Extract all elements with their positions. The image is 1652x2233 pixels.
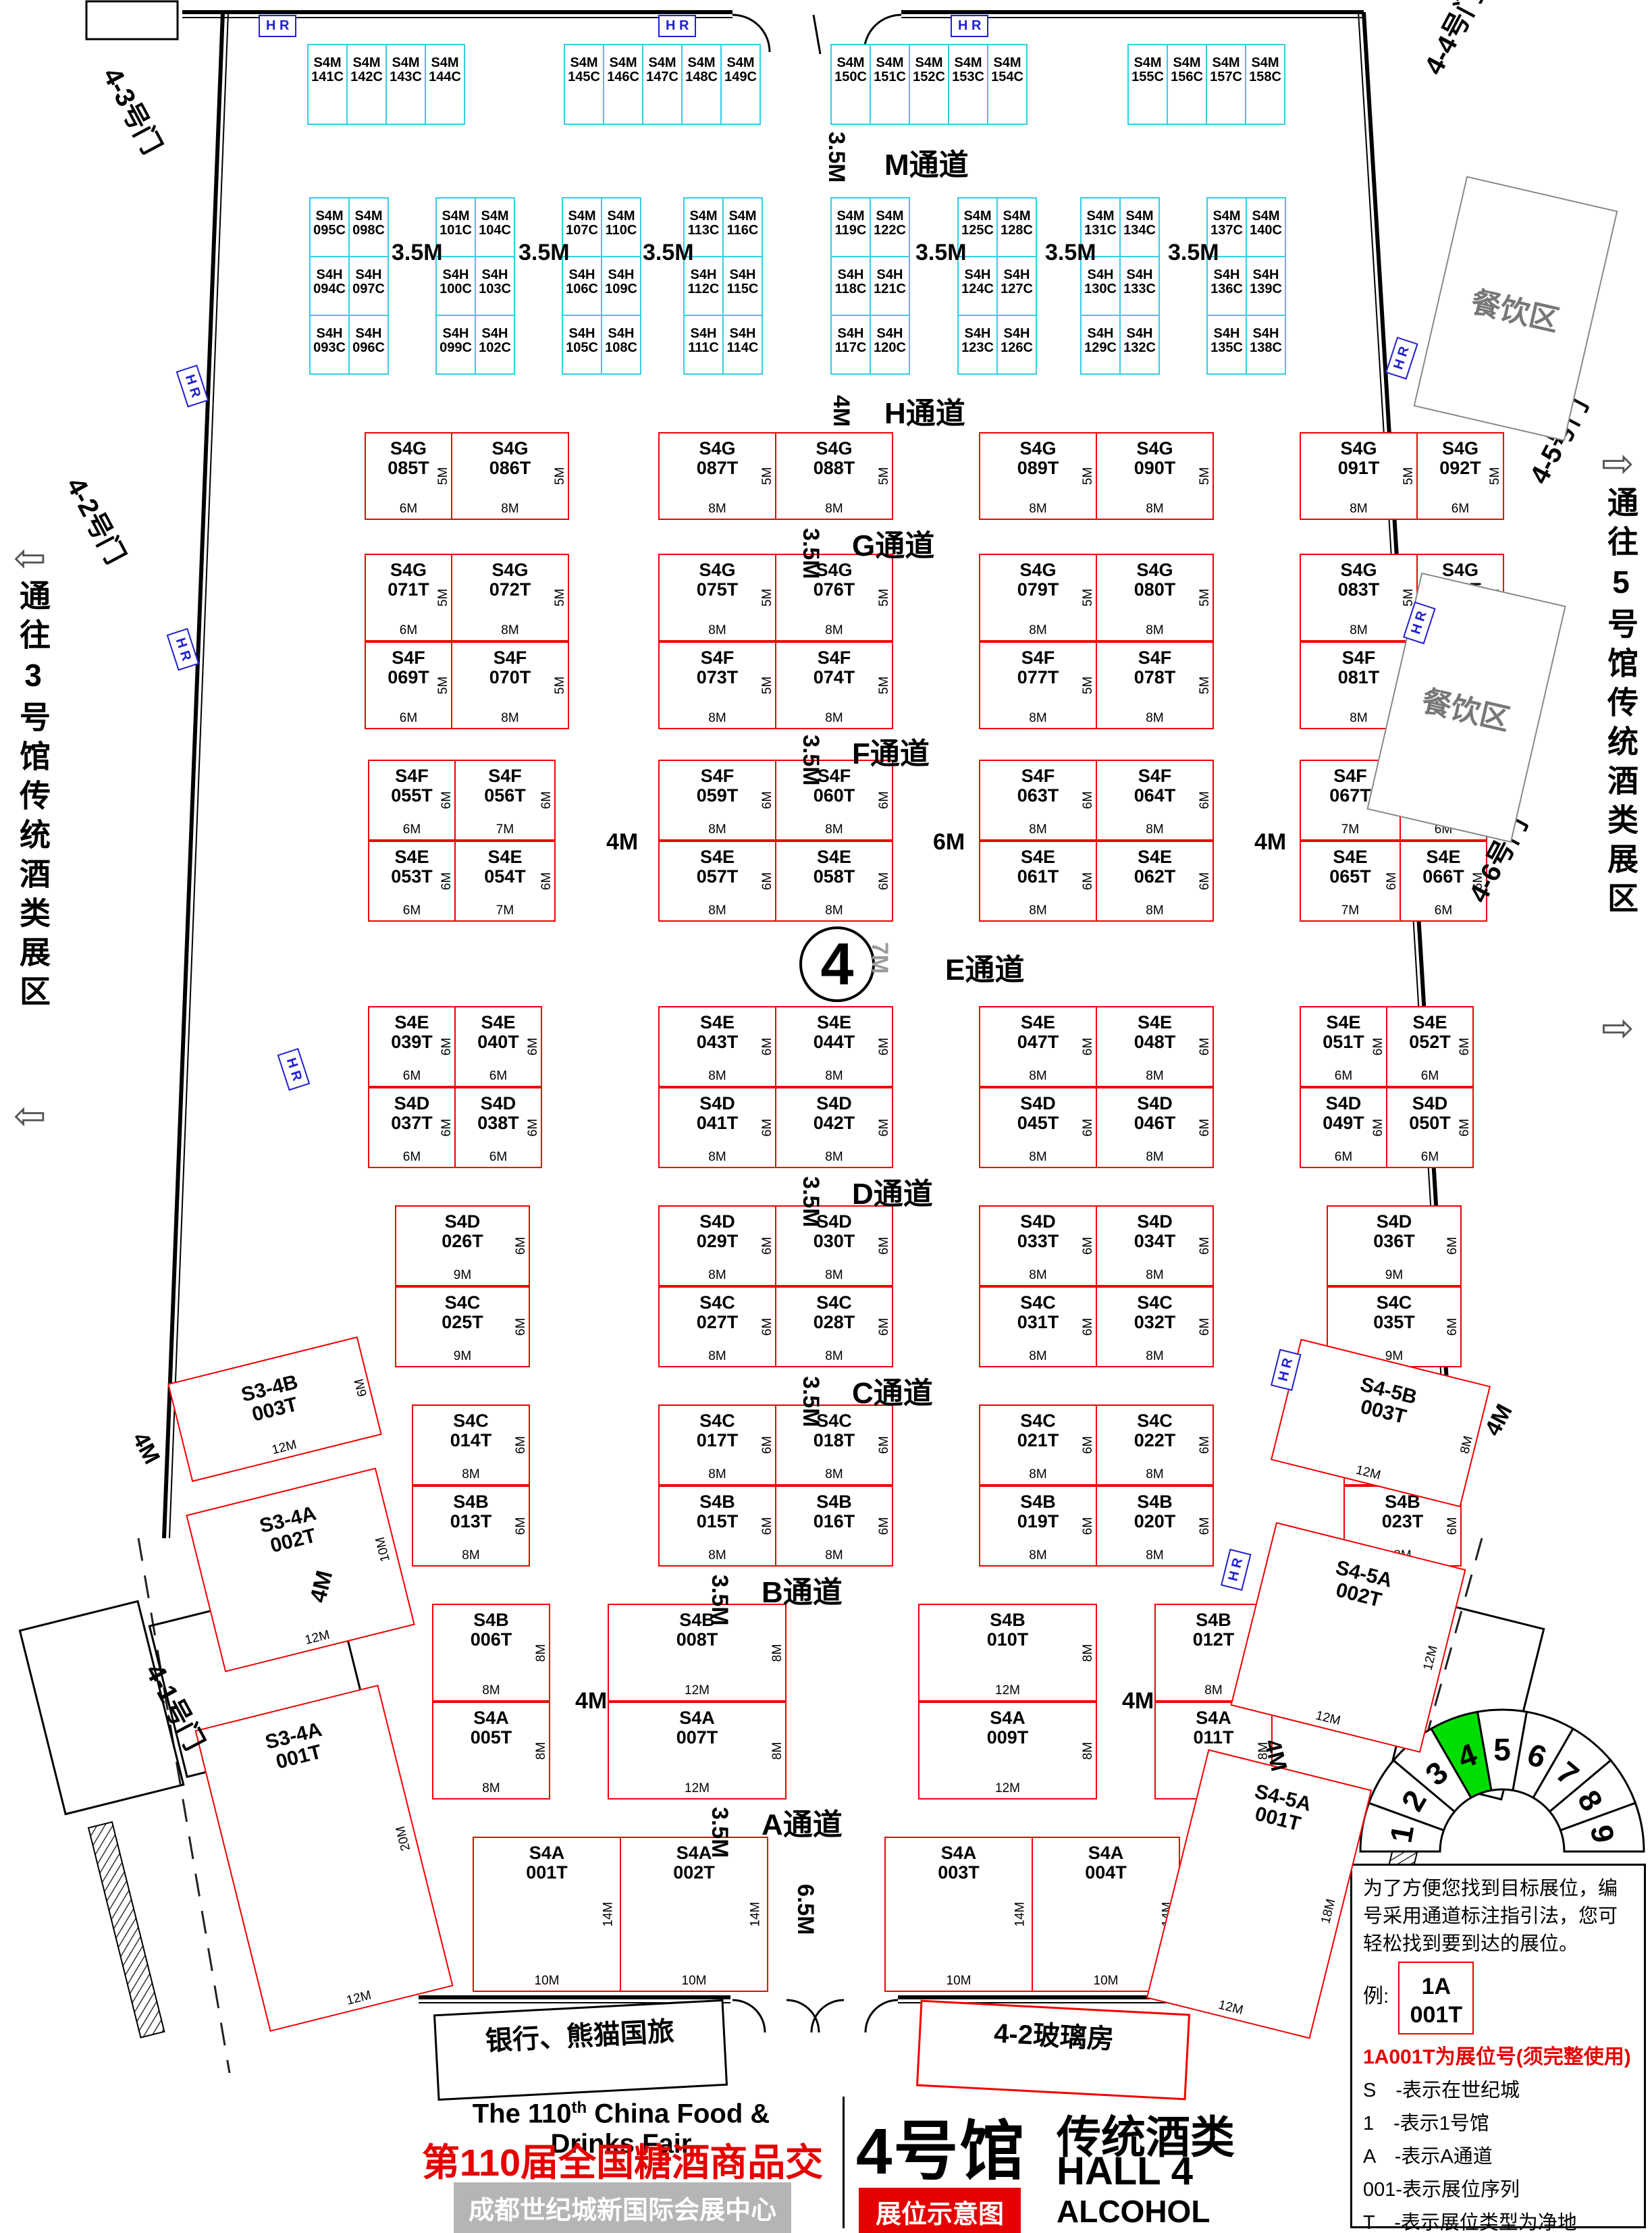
booth-depth-dim: 6M: [1458, 1038, 1472, 1055]
booth-S4D-029T: S4D 029T6M8M: [658, 1205, 776, 1286]
booth-S4B-015T: S4B 015T6M8M: [658, 1486, 776, 1567]
booth-id: S4C 035T: [1328, 1293, 1460, 1332]
booth-width-dim: 7M: [456, 903, 554, 918]
aisle-width-dim: 3.5M: [392, 240, 443, 266]
booth-id: S4H 102C: [476, 327, 514, 355]
booth-S4M-095C: S4M 095C: [309, 197, 350, 257]
dimension-label: 3.5M: [797, 1176, 824, 1228]
booth-width-dim: 8M: [452, 623, 568, 638]
booth-S4G-079T: S4G 079T5M8M: [979, 554, 1097, 641]
booth-depth-dim: 6M: [760, 1436, 775, 1454]
booth-id: S4B 006T: [433, 1610, 549, 1649]
booth-S4M-110C: S4M 110C: [601, 197, 641, 257]
booth-depth-dim: 5M: [1081, 467, 1096, 485]
booth-S4E-062T: S4E 062T6M8M: [1096, 841, 1214, 922]
booth-depth-dim: 6M: [1081, 1517, 1096, 1535]
structure-glass-house: 4-2玻璃房: [916, 2000, 1190, 2101]
aisle-label-D: D通道: [852, 1170, 933, 1213]
aisle-width-dim: 3.5M: [1168, 240, 1219, 266]
booth-id: S4B 019T: [980, 1492, 1096, 1531]
booth-id: S4E 043T: [660, 1013, 775, 1051]
booth-id: S4H 136C: [1208, 268, 1246, 296]
booth-id: S4C 014T: [413, 1411, 529, 1450]
booth-width-dim: 6M: [1387, 1150, 1472, 1165]
booth-S4M-148C: S4M 148C: [681, 44, 722, 125]
booth-id: S4E 044T: [776, 1013, 892, 1051]
booth-depth-dim: 5M: [760, 677, 775, 694]
booth-id: S4H 109C: [602, 268, 640, 296]
booth-depth-dim: 6M: [1081, 872, 1096, 890]
booth-depth-dim: 8M: [770, 1644, 785, 1661]
booth-depth-dim: 20M: [394, 1824, 414, 1852]
booth-id: S4B 016T: [776, 1492, 892, 1531]
aisle-width-dim: 3.5M: [1045, 240, 1096, 266]
booth-width-dim: 8M: [1301, 502, 1416, 517]
booth-id: S4D 045T: [980, 1094, 1096, 1132]
booth-S4F-055T: S4F 055T6M6M: [368, 760, 456, 841]
booth-depth-dim: 14M: [749, 1902, 764, 1927]
booth-S4E-053T: S4E 053T6M6M: [368, 841, 456, 922]
booth-S4F-064T: S4F 064T6M8M: [1096, 760, 1214, 841]
booth-id: S4M 156C: [1168, 56, 1206, 84]
booth-S4A-003T: S4A 003T14M10M: [884, 1837, 1033, 1992]
aisle-label-E: E通道: [945, 945, 1024, 989]
booth-id: S4H 124C: [959, 268, 996, 296]
booth-id: S4H 117C: [832, 327, 870, 355]
booth-width-dim: 8M: [660, 1548, 775, 1563]
hall-selector-number: 5: [1493, 1732, 1511, 1767]
booth-width-dim: 8M: [413, 1467, 529, 1482]
booth-width-dim: 8M: [1097, 623, 1213, 638]
booth-S4A-009T: S4A 009T8M12M: [918, 1702, 1097, 1799]
booth-depth-dim: 8M: [534, 1741, 549, 1759]
booth-id: S4M 148C: [683, 56, 720, 84]
booth-S4M-155C: S4M 155C: [1127, 44, 1168, 125]
booth-depth-dim: 10M: [373, 1535, 394, 1563]
aisle-label-B: B通道: [762, 1568, 843, 1611]
booth-width-dim: 12M: [920, 1683, 1096, 1698]
booth-S4G-090T: S4G 090T5M8M: [1096, 432, 1214, 520]
booth-depth-dim: 6M: [877, 1237, 892, 1255]
booth-S4E-054T: S4E 054T6M7M: [454, 841, 556, 922]
booth-S4D-026T: S4D 026T6M9M: [395, 1205, 530, 1286]
dimension-label: 4M: [575, 1688, 607, 1714]
legend-code-def: 001-表示展位序列: [1363, 2174, 1633, 2202]
booth-id: S4E 047T: [980, 1013, 1096, 1051]
booth-depth-dim: 6M: [760, 1119, 775, 1136]
booth-width-dim: 6M: [369, 1150, 454, 1165]
corridor-arrow-left: ⇦: [14, 535, 47, 581]
booth-id: S4M 157C: [1207, 56, 1245, 84]
booth-S4H-094C: S4H 094C: [309, 256, 350, 316]
booth-S4H-133C: S4H 133C: [1119, 256, 1160, 316]
booth-id: S4H 112C: [685, 268, 722, 296]
hall4-floorplan: 123456789 4 为了方便您找到目标展位，编号采用通道标注指引法，您可轻松…: [0, 0, 1652, 2233]
booth-S4H-093C: S4H 093C: [309, 315, 350, 375]
dimension-label: 3.5M: [797, 528, 824, 579]
booth-width-dim: 6M: [1301, 1150, 1386, 1165]
booth-depth-dim: 5M: [877, 677, 892, 694]
booth-depth-dim: 6M: [1198, 1318, 1213, 1336]
booth-id: S4M 134C: [1121, 209, 1158, 238]
booth-id: S4M 131C: [1082, 209, 1119, 238]
booth-id: S4M 154C: [988, 56, 1026, 84]
booth-S4F-056T: S4F 056T6M7M: [454, 760, 556, 841]
booth-id: S4M 149C: [722, 56, 760, 84]
booth-id: S4G 076T: [776, 560, 892, 599]
booth-depth-dim: 5M: [1488, 467, 1503, 485]
booth-S4B-020T: S4B 020T6M8M: [1096, 1486, 1214, 1567]
booth-depth-dim: 18M: [1318, 1897, 1339, 1925]
booth-depth-dim: 5M: [553, 677, 568, 694]
booth-width-dim: 8M: [1097, 1548, 1213, 1563]
title-divider: [843, 2097, 845, 2228]
booth-id: S4M 142C: [348, 56, 385, 84]
booth-depth-dim: 8M: [1081, 1741, 1096, 1759]
booth-id: S4G 090T: [1097, 439, 1213, 477]
legend-box: 为了方便您找到目标展位，编号采用通道标注指引法，您可轻松找到要到达的展位。 例:…: [1350, 1864, 1646, 2228]
booth-id: S4M 110C: [602, 209, 640, 238]
booth-depth-dim: 6M: [514, 1517, 529, 1535]
booth-S4M-144C: S4M 144C: [425, 44, 465, 125]
booth-width-dim: 8M: [660, 1268, 775, 1283]
booth-id: S4H 103C: [476, 268, 514, 296]
booth-width-dim: 6M: [366, 502, 451, 517]
booth-width-dim: 8M: [452, 502, 568, 517]
booth-width-dim: 6M: [1401, 903, 1486, 918]
booth-id: S4F 063T: [980, 766, 1096, 805]
booth-width-dim: 8M: [980, 903, 1096, 918]
booth-depth-dim: 5M: [1198, 677, 1213, 694]
booth-width-dim: 7M: [1301, 903, 1400, 918]
booth-width-dim: 8M: [660, 502, 775, 517]
booth-id: S4M 128C: [998, 209, 1036, 238]
booth-depth-dim: 6M: [760, 1318, 775, 1336]
booth-depth-dim: 6M: [1198, 1237, 1213, 1255]
legend-code-def: T -表示展位类型为净地: [1363, 2207, 1633, 2233]
legend-example-label: 例:: [1363, 1979, 1389, 2009]
booth-S4G-071T: S4G 071T5M6M: [365, 554, 452, 641]
booth-depth-dim: 6M: [526, 1119, 541, 1136]
aisle-width-dim: 3.5M: [915, 240, 967, 266]
booth-S4M-116C: S4M 116C: [722, 197, 763, 257]
booth-S4M-141C: S4M 141C: [307, 44, 348, 125]
booth-width-dim: 8M: [980, 1069, 1096, 1084]
booth-id: S4H 096C: [350, 327, 388, 355]
booth-width-dim: 8M: [452, 711, 568, 726]
booth-width-dim: 8M: [980, 1548, 1096, 1563]
booth-depth-dim: 6M: [1198, 791, 1213, 809]
booth-S4D-030T: S4D 030T6M8M: [775, 1205, 893, 1286]
booth-S4M-104C: S4M 104C: [475, 197, 515, 257]
booth-width-dim: 8M: [980, 711, 1096, 726]
booth-depth-dim: 5M: [760, 589, 775, 606]
booth-id: S4D 030T: [776, 1212, 892, 1251]
booth-id: S4M 122C: [871, 209, 909, 238]
booth-id: S4G 086T: [452, 439, 568, 477]
booth-depth-dim: 5M: [1402, 467, 1416, 485]
booth-S4G-092T: S4G 092T5M6M: [1416, 432, 1504, 520]
booth-S4B-008T: S4B 008T8M12M: [608, 1604, 787, 1702]
booth-id: S4H 111C: [685, 327, 722, 355]
booth-S4C-032T: S4C 032T6M8M: [1096, 1286, 1214, 1367]
booth-width-dim: 10M: [474, 1974, 620, 1989]
booth-depth-dim: 6M: [760, 1237, 775, 1255]
booth-width-dim: 8M: [980, 502, 1096, 517]
hall-number-circle: 4: [799, 926, 875, 1002]
booth-S4C-014T: S4C 014T6M8M: [412, 1404, 530, 1486]
booth-id: S4M 101C: [437, 209, 475, 238]
booth-S4F-077T: S4F 077T5M8M: [979, 641, 1097, 729]
booth-id: S4D 041T: [660, 1094, 775, 1132]
booth-width-dim: 8M: [660, 822, 775, 837]
booth-S4G-086T: S4G 086T5M8M: [451, 432, 569, 520]
booth-id: S4B 020T: [1097, 1492, 1213, 1531]
booth-S4E-040T: S4E 040T6M6M: [454, 1006, 542, 1087]
booth-id: S4D 029T: [660, 1212, 775, 1251]
booth-id: S4H 105C: [563, 327, 601, 355]
booth-S4D-045T: S4D 045T6M8M: [979, 1087, 1097, 1168]
booth-width-dim: 8M: [776, 1548, 892, 1563]
booth-S4E-058T: S4E 058T6M8M: [775, 841, 893, 922]
booth-depth-dim: 6M: [514, 1237, 529, 1255]
booth-id: S4E 062T: [1097, 847, 1213, 886]
booth-width-dim: 8M: [433, 1781, 549, 1796]
booth-depth-dim: 6M: [1081, 791, 1096, 809]
booth-S4H-139C: S4H 139C: [1246, 256, 1286, 316]
booth-width-dim: 8M: [776, 1150, 892, 1165]
booth-S4H-105C: S4H 105C: [562, 315, 602, 375]
booth-depth-dim: 12M: [1421, 1644, 1441, 1672]
booth-id: S4M 155C: [1129, 56, 1167, 84]
booth-S4G-085T: S4G 085T5M6M: [365, 432, 452, 520]
booth-S4M-153C: S4M 153C: [948, 44, 988, 125]
booth-S4M-156C: S4M 156C: [1167, 44, 1207, 125]
dimension-label: 3.5M: [797, 735, 824, 786]
booth-id: S4G 083T: [1301, 560, 1416, 599]
booth-id: S4M 137C: [1208, 209, 1246, 238]
booth-id: S4D 026T: [396, 1212, 529, 1251]
booth-width-dim: 6M: [366, 711, 451, 726]
booth-width-dim: 8M: [1097, 1150, 1213, 1165]
booth-width-dim: 8M: [776, 1069, 892, 1084]
structure-label: 银行、熊猫国旅: [436, 2007, 724, 2061]
booth-width-dim: 8M: [1097, 822, 1213, 837]
dimension-label: 3.5M: [706, 1575, 732, 1626]
dimension-label: 3.5M: [706, 1807, 732, 1858]
structure-bank: 银行、熊猫国旅: [433, 1999, 728, 2101]
booth-id: S4H 135C: [1208, 327, 1246, 355]
booth-id: S4M 107C: [563, 209, 601, 238]
booth-S4E-065T: S4E 065T6M7M: [1300, 841, 1401, 922]
booth-id: S4A 003T: [886, 1843, 1032, 1882]
booth-S4G-089T: S4G 089T5M8M: [979, 432, 1097, 520]
legend-code-def: S -表示在世纪城: [1363, 2074, 1633, 2103]
booth-depth-dim: 6M: [760, 1038, 775, 1055]
map-badge: 展位示意图: [859, 2188, 1021, 2233]
booth-width-dim: 6M: [366, 623, 451, 638]
booth-depth-dim: 6M: [439, 1119, 454, 1136]
booth-width-dim: 8M: [660, 1349, 775, 1364]
booth-id: S4H 094C: [311, 268, 348, 296]
booth-width-dim: 6M: [369, 1069, 454, 1084]
booth-id: S4F 078T: [1097, 648, 1213, 687]
booth-S4H-097C: S4H 097C: [348, 256, 389, 316]
dimension-label: 6M: [933, 829, 965, 856]
booth-depth-dim: 5M: [436, 467, 451, 485]
aisle-label-C: C通道: [852, 1369, 933, 1412]
booth-id: S4M 150C: [832, 56, 870, 84]
booth-depth-dim: 6M: [1371, 1119, 1386, 1136]
booth-width-dim: 8M: [1097, 1268, 1213, 1283]
booth-S4E-044T: S4E 044T6M8M: [775, 1006, 893, 1087]
booth-depth-dim: 6M: [1198, 1436, 1213, 1454]
booth-depth-dim: 6M: [877, 1436, 892, 1454]
booth-S4H-123C: S4H 123C: [957, 315, 998, 375]
booth-id: S4C 018T: [776, 1411, 892, 1450]
booth-id: S4A 004T: [1033, 1843, 1179, 1882]
booth-S4C-025T: S4C 025T6M9M: [395, 1286, 530, 1367]
booth-depth-dim: 6M: [514, 1436, 529, 1454]
booth-width-dim: 8M: [660, 1069, 775, 1084]
booth-id: S4G 088T: [776, 439, 892, 477]
booth-width-dim: 7M: [456, 822, 554, 837]
booth-width-dim: 12M: [609, 1683, 785, 1698]
booth-S4H-135C: S4H 135C: [1206, 315, 1247, 375]
booth-id: S4H 123C: [959, 327, 996, 355]
booth-id: S4A 001T: [474, 1843, 620, 1882]
booth-width-dim: 8M: [776, 1268, 892, 1283]
booth-width-dim: 8M: [980, 822, 1096, 837]
booth-S4B-006T: S4B 006T8M8M: [432, 1604, 550, 1702]
booth-depth-dim: 5M: [877, 589, 892, 606]
booth-S4B-013T: S4B 013T6M8M: [412, 1486, 530, 1567]
booth-width-dim: 6M: [369, 822, 454, 837]
booth-depth-dim: 6M: [514, 1318, 529, 1336]
booth-S4C-028T: S4C 028T6M8M: [775, 1286, 893, 1367]
booth-S4D-038T: S4D 038T6M6M: [454, 1087, 542, 1168]
booth-id: S4F 074T: [776, 648, 892, 687]
booth-id: S4M 113C: [685, 209, 722, 238]
booth-id: S4M 151C: [871, 56, 909, 84]
booth-width-dim: 8M: [1097, 1467, 1213, 1482]
booth-S4E-051T: S4E 051T6M6M: [1300, 1006, 1387, 1087]
booth-S4F-073T: S4F 073T5M8M: [658, 641, 776, 729]
booth-S4M-122C: S4M 122C: [870, 197, 910, 257]
booth-width-dim: 8M: [660, 1150, 775, 1165]
booth-id: S4H 118C: [832, 268, 870, 296]
booth-id: S4H 127C: [998, 268, 1036, 296]
booth-depth-dim: 6M: [1385, 872, 1400, 890]
booth-S4D-041T: S4D 041T6M8M: [658, 1087, 776, 1168]
booth-S4G-075T: S4G 075T5M8M: [658, 554, 776, 641]
corridor-arrow-left: ⇦: [14, 1093, 47, 1138]
booth-id: S4M 125C: [959, 209, 996, 238]
booth-width-dim: 9M: [1328, 1268, 1460, 1283]
booth-id: S4G 089T: [980, 439, 1096, 477]
booth-S4E-048T: S4E 048T6M8M: [1096, 1006, 1214, 1087]
booth-S4D-049T: S4D 049T6M6M: [1300, 1087, 1387, 1168]
booth-S4M-158C: S4M 158C: [1245, 44, 1285, 125]
booth-id: S4H 106C: [563, 268, 601, 296]
booth-S4C-021T: S4C 021T6M8M: [979, 1404, 1097, 1486]
legend-booth-number-note: 1A001T为展位号(须完整使用): [1363, 2040, 1633, 2070]
booth-S4H-114C: S4H 114C: [722, 315, 763, 375]
booth-S4D-037T: S4D 037T6M6M: [368, 1087, 456, 1168]
booth-width-dim: 8M: [776, 623, 892, 638]
booth-id: S4M 140C: [1247, 209, 1285, 238]
booth-S4A-001T: S4A 001T14M10M: [473, 1837, 621, 1992]
booth-S4M-150C: S4M 150C: [830, 44, 871, 125]
booth-id: S4H 114C: [724, 327, 762, 355]
booth-depth-dim: 5M: [436, 589, 451, 606]
booth-S4G-088T: S4G 088T5M8M: [775, 432, 893, 520]
booth-S4C-017T: S4C 017T6M8M: [658, 1404, 776, 1486]
booth-id: S4M 098C: [350, 209, 388, 238]
booth-id: S4G 087T: [660, 439, 775, 477]
booth-S4M-143C: S4M 143C: [385, 44, 426, 125]
booth-id: S4H 099C: [437, 327, 475, 355]
booth-width-dim: 8M: [1301, 623, 1416, 638]
booth-depth-dim: 6M: [439, 791, 454, 809]
booth-S4M-140C: S4M 140C: [1246, 197, 1286, 257]
booth-id: S4G 079T: [980, 560, 1096, 599]
booth-width-dim: 8M: [1097, 711, 1213, 726]
booth-depth-dim: 6M: [877, 791, 892, 809]
booth-id: S4F 073T: [660, 648, 775, 687]
booth-id: S4C 025T: [396, 1293, 529, 1332]
booth-id: S4M 147C: [643, 56, 681, 84]
booth-depth-dim: 8M: [770, 1741, 785, 1759]
booth-id: S4M 144C: [426, 56, 464, 84]
booth-id: S4F 064T: [1097, 766, 1213, 805]
booth-depth-dim: 6M: [1198, 872, 1213, 890]
legend-code-def: A -表示A通道: [1363, 2140, 1633, 2169]
booth-depth-dim: 6M: [526, 1038, 541, 1055]
booth-depth-dim: 6M: [760, 1517, 775, 1535]
booth-depth-dim: 6M: [760, 791, 775, 809]
booth-depth-dim: 6M: [439, 1038, 454, 1055]
booth-S4C-027T: S4C 027T6M8M: [658, 1286, 776, 1367]
booth-width-dim: 6M: [456, 1069, 541, 1084]
booth-id: S4B 010T: [920, 1610, 1096, 1649]
booth-S4G-076T: S4G 076T5M8M: [775, 554, 893, 641]
booth-id: S4C 027T: [660, 1293, 775, 1332]
booth-id: S4M 158C: [1246, 56, 1284, 84]
booth-S4H-126C: S4H 126C: [996, 315, 1037, 375]
booth-id: S4H 138C: [1247, 327, 1285, 355]
booth-id: S4M 119C: [832, 209, 870, 238]
booth-width-dim: 8M: [776, 711, 892, 726]
booth-width-dim: 8M: [776, 903, 892, 918]
booth-S4G-080T: S4G 080T5M8M: [1096, 554, 1214, 641]
booth-width-dim: 8M: [433, 1683, 549, 1698]
booth-id: S4A 009T: [920, 1708, 1096, 1747]
booth-width-dim: 8M: [1097, 903, 1213, 918]
hall-name-en: HALL 4: [1057, 2149, 1193, 2194]
booth-id: S4G 091T: [1301, 439, 1416, 477]
booth-depth-dim: 14M: [1013, 1902, 1028, 1927]
booth-S4H-117C: S4H 117C: [830, 315, 871, 375]
booth-id: S4C 028T: [776, 1293, 892, 1332]
hr-icon: H R: [259, 15, 296, 37]
booth-id: S4A 011T: [1156, 1708, 1271, 1747]
booth-depth-dim: 5M: [1081, 677, 1096, 694]
booth-S4B-010T: S4B 010T8M12M: [918, 1604, 1097, 1702]
booth-S4H-120C: S4H 120C: [870, 315, 910, 375]
booth-width-dim: 9M: [396, 1349, 529, 1364]
booth-S4H-127C: S4H 127C: [996, 256, 1037, 316]
